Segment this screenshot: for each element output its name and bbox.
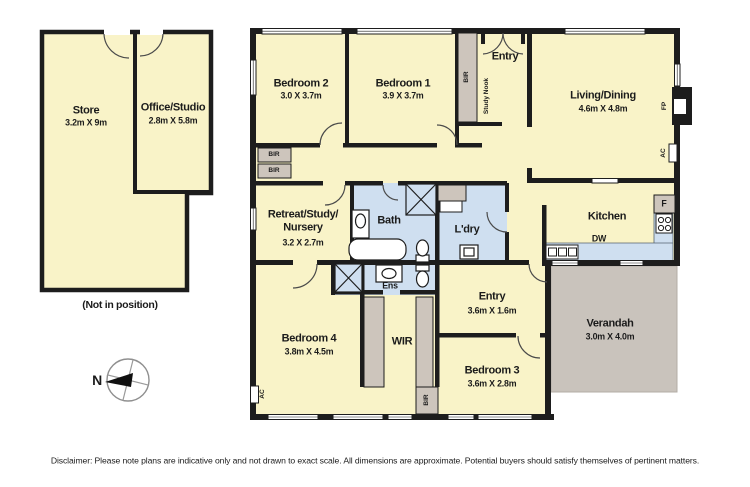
office-door-opening (140, 29, 163, 35)
living-dining-label: Living/Dining (570, 91, 636, 102)
ens-label: Ens (382, 282, 398, 291)
ens-toilet (417, 271, 429, 287)
retreat-label-line2: Nursery (283, 223, 322, 234)
retreat-label-line1: Retreat/Study/ (268, 210, 338, 221)
retreat-dims: 3.2 X 2.7m (282, 239, 323, 248)
bir-hall-2-label: BIR (268, 168, 279, 175)
kitchen-label: Kitchen (588, 212, 626, 223)
bedroom3-dims: 3.6m X 2.8m (468, 380, 517, 389)
bedroom2-label: Bedroom 2 (274, 79, 329, 90)
disclaimer-text: Disclaimer: Please note plans are indica… (51, 457, 699, 466)
compass-icon (103, 355, 154, 406)
store-office-divider-wall (133, 32, 137, 193)
bedroom4-dims: 3.8m X 4.5m (285, 348, 334, 357)
bath-label: Bath (377, 216, 400, 227)
laundry-appliance (440, 201, 462, 212)
entry-lower-dims: 3.6m X 1.6m (468, 307, 517, 316)
study-nook-label: Study Nook (484, 78, 491, 114)
bir-bedroom3-label: BIR (424, 394, 431, 405)
entry-lower-label: Entry (479, 292, 506, 303)
office-dims: 2.8m X 5.8m (149, 117, 198, 126)
office-bottom-wall (133, 190, 211, 194)
bedroom1-dims: 3.9 X 3.7m (382, 92, 423, 101)
outbuilding (42, 29, 211, 290)
store-door-opening (104, 29, 130, 35)
ac-right-label: AC (661, 148, 668, 157)
compass-north-label: N (92, 373, 102, 387)
ac-unit-left (251, 386, 259, 403)
floorplan-drawing (0, 0, 750, 487)
wir-label: WIR (392, 337, 412, 348)
laundry-label: L'dry (455, 225, 480, 236)
bedroom2-dims: 3.0 X 3.7m (280, 92, 321, 101)
fireplace-label: FP (662, 102, 669, 110)
bathtub (349, 239, 406, 260)
wir-robe-left (364, 297, 384, 387)
ac-left-label: AC (260, 389, 267, 398)
bedroom1-label: Bedroom 1 (376, 79, 431, 90)
verandah-dims: 3.0m X 4.0m (586, 333, 635, 342)
laundry-cupboard (438, 185, 466, 201)
dishwasher-label: DW (592, 235, 606, 244)
bath-basin (356, 214, 366, 228)
wir-robe-right (416, 297, 433, 387)
ens-basin (382, 269, 396, 279)
bedroom4-label: Bedroom 4 (282, 334, 337, 345)
bedroom3-label: Bedroom 3 (465, 366, 520, 377)
laundry-fixtures (460, 245, 478, 259)
bir-hall-1-label: BIR (268, 152, 279, 159)
store-dims: 3.2m X 9m (65, 119, 107, 128)
floorplan-page: Store 3.2m X 9m Office/Studio 2.8m X 5.8… (0, 0, 750, 487)
bath-toilet (417, 240, 429, 256)
ac-unit-right (669, 144, 677, 162)
laundry-trough-bowl (464, 248, 474, 256)
fireplace-inner (674, 99, 686, 114)
verandah-label: Verandah (586, 319, 633, 330)
living-dining-dims: 4.6m X 4.8m (579, 105, 628, 114)
bir-bedroom1-label: BIR (464, 71, 471, 82)
fridge-label: F (661, 200, 666, 209)
entry-top-label: Entry (492, 52, 519, 63)
store-label: Store (73, 106, 100, 117)
ens-toilet-tank (416, 265, 429, 271)
outbuilding-outline (42, 32, 211, 290)
not-in-position-note: (Not in position) (82, 300, 157, 311)
office-label: Office/Studio (141, 103, 206, 114)
